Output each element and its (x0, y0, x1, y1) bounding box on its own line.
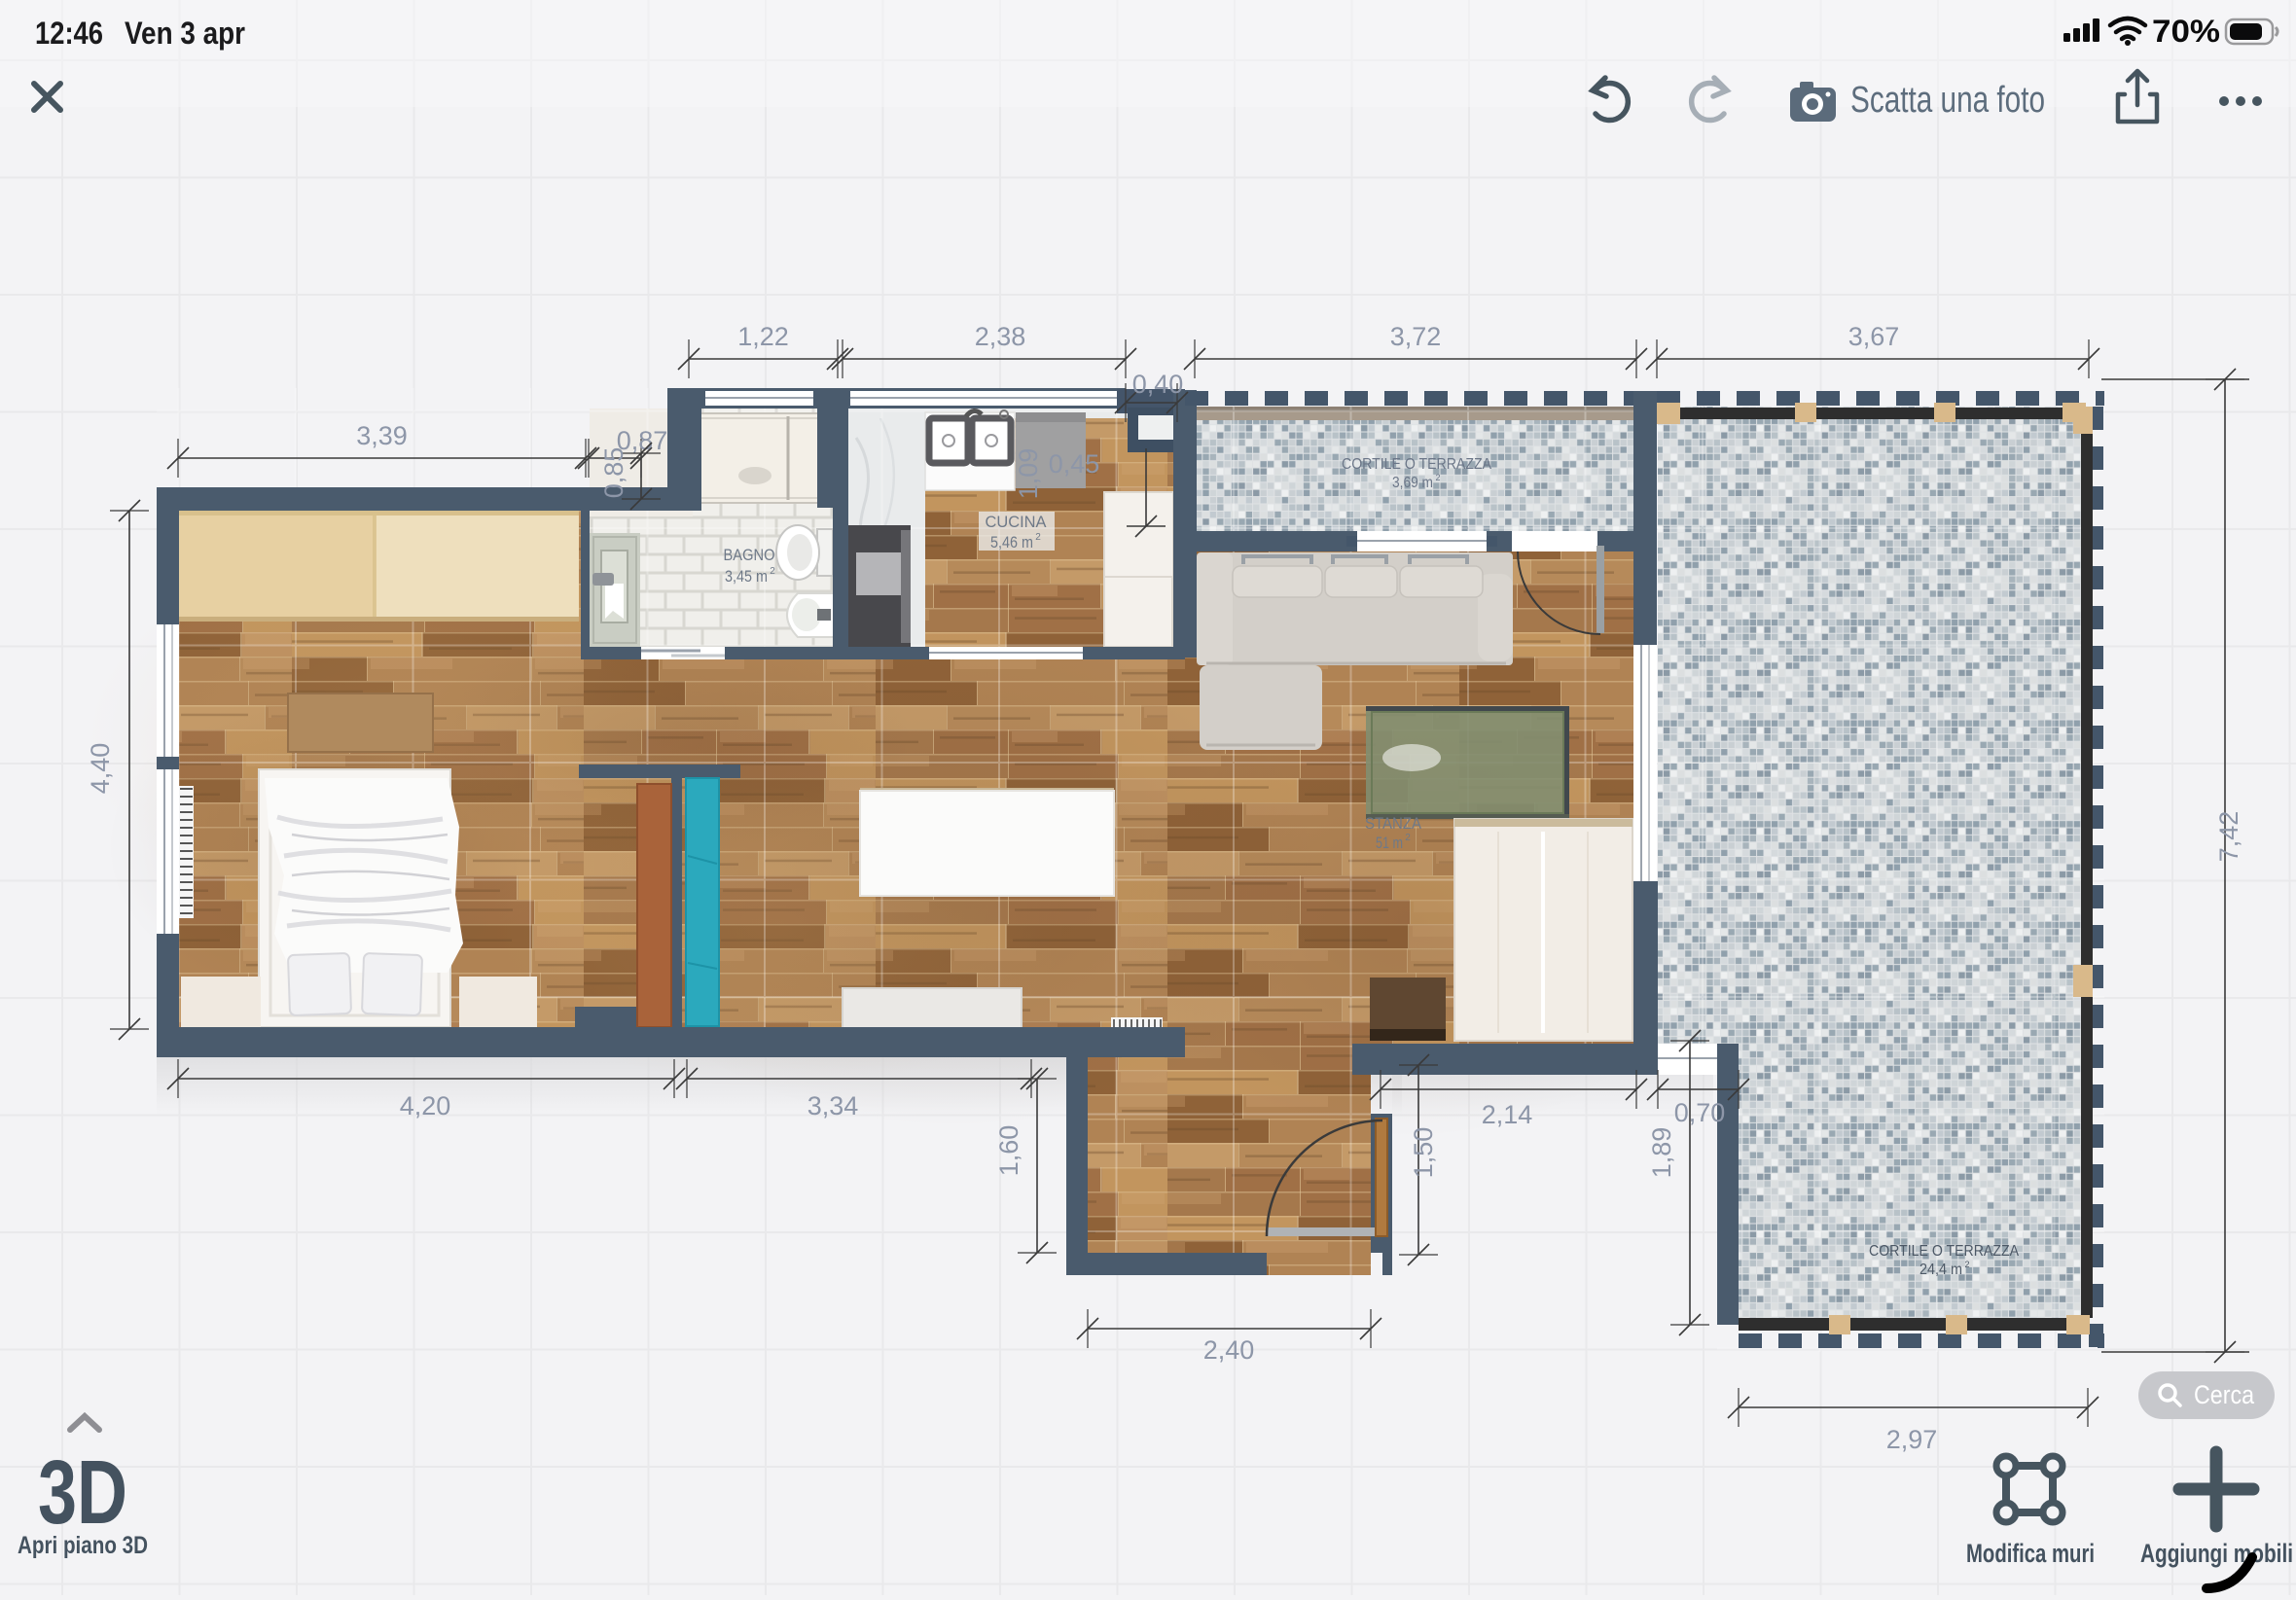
svg-text:CORTILE O TERRAZZA: CORTILE O TERRAZZA (1342, 456, 1491, 473)
svg-text:2,14: 2,14 (1482, 1100, 1533, 1129)
svg-text:Ven 3 apr: Ven 3 apr (125, 16, 245, 51)
svg-text:0,45: 0,45 (1049, 449, 1100, 479)
svg-text:3,67: 3,67 (1848, 322, 1900, 351)
svg-text:70%: 70% (2152, 14, 2220, 49)
svg-text:5,46 m: 5,46 m (990, 533, 1033, 551)
svg-text:Modifica muri: Modifica muri (1966, 1539, 2095, 1568)
svg-text:2: 2 (1035, 532, 1041, 543)
svg-text:0,85: 0,85 (599, 447, 628, 499)
svg-text:Apri piano 3D: Apri piano 3D (18, 1532, 148, 1559)
svg-text:3,69 m: 3,69 m (1392, 475, 1433, 491)
svg-text:24,4 m: 24,4 m (1919, 1262, 1962, 1278)
svg-text:2,97: 2,97 (1886, 1425, 1938, 1454)
svg-text:1,50: 1,50 (1409, 1127, 1438, 1179)
svg-text:Cerca: Cerca (2194, 1380, 2255, 1409)
svg-text:1,09: 1,09 (1014, 448, 1043, 500)
svg-text:1,89: 1,89 (1647, 1127, 1676, 1179)
svg-text:51 m: 51 m (1376, 834, 1403, 852)
svg-text:2: 2 (770, 566, 775, 577)
svg-text:2: 2 (1964, 1260, 1969, 1269)
svg-text:Aggiungi mobili: Aggiungi mobili (2140, 1539, 2293, 1568)
svg-text:2: 2 (1405, 833, 1411, 843)
svg-text:1,60: 1,60 (994, 1125, 1023, 1177)
svg-text:3,72: 3,72 (1390, 322, 1442, 351)
svg-text:4,20: 4,20 (400, 1091, 451, 1120)
svg-text:7,42: 7,42 (2214, 811, 2243, 863)
svg-text:3,39: 3,39 (356, 421, 408, 450)
svg-text:3D: 3D (38, 1441, 127, 1543)
svg-text:2: 2 (1435, 473, 1440, 482)
svg-text:2,40: 2,40 (1203, 1335, 1255, 1365)
svg-text:2,38: 2,38 (975, 322, 1026, 351)
svg-text:CORTILE O TERRAZZA: CORTILE O TERRAZZA (1869, 1243, 2019, 1260)
svg-text:1,22: 1,22 (737, 322, 789, 351)
svg-text:CUCINA: CUCINA (986, 513, 1048, 531)
svg-text:12:46: 12:46 (35, 16, 103, 51)
svg-text:0,40: 0,40 (1132, 370, 1184, 399)
svg-text:3,45 m: 3,45 m (725, 567, 768, 586)
svg-text:Scatta una foto: Scatta una foto (1850, 80, 2045, 121)
svg-text:STANZA: STANZA (1365, 814, 1422, 833)
svg-text:BAGNO: BAGNO (724, 546, 775, 564)
svg-text:4,40: 4,40 (86, 743, 115, 795)
svg-text:0,70: 0,70 (1674, 1098, 1726, 1127)
svg-text:3,34: 3,34 (807, 1091, 859, 1120)
